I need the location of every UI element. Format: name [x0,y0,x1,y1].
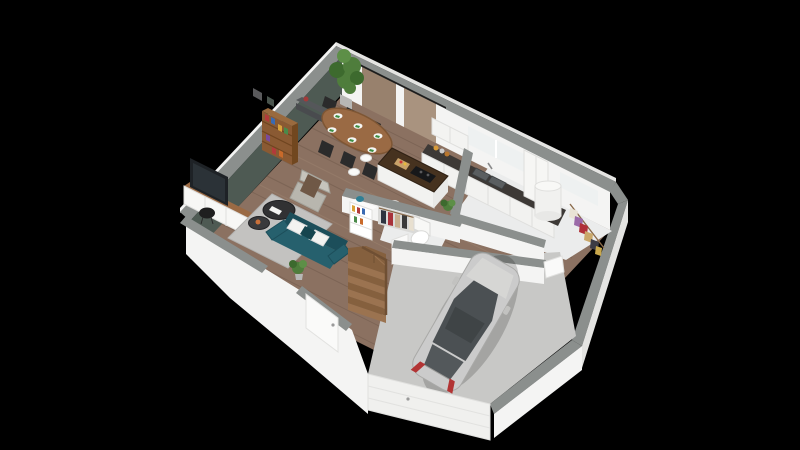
plant-foliage [329,62,345,78]
plant-foliage [337,49,351,63]
hall-garment [388,212,393,226]
book [360,218,363,225]
picture-frame [267,96,274,107]
picture-frame [253,88,262,101]
bookshelf-side [292,123,298,165]
floor-plan-render [0,0,800,450]
food-item [400,161,403,164]
plant-foliage [344,82,356,94]
floor-plan-canvas [0,0,800,450]
hob-ring [427,174,430,177]
hanging-garment [595,246,602,256]
window-pier [396,84,404,128]
jar [434,146,439,151]
hall-garment [381,210,386,224]
bowl [256,220,261,225]
food-item [404,163,407,166]
hall-garment [402,215,407,229]
plant-foliage [441,200,448,207]
plant-foliage [289,260,297,268]
bar-stool [349,169,360,176]
book [354,216,357,223]
water-heater-top [535,181,561,191]
plant-foliage [299,260,307,268]
hall-garment [409,217,414,231]
jar [445,152,450,157]
bar-stool [361,155,372,162]
hall-garment [395,214,400,228]
hob-ring [420,171,423,174]
water-heater-bottom [535,211,561,221]
staircase [348,246,386,323]
plant-foliage [449,200,456,207]
plant-pot [295,274,303,280]
garage-door-handle [406,397,409,400]
black-side-chair [199,208,215,219]
book [352,205,355,212]
book [357,207,360,214]
jar [440,149,445,154]
book [362,208,365,215]
blue-vase [356,196,364,202]
front-door-handle [331,323,334,326]
red-vase [304,97,309,102]
